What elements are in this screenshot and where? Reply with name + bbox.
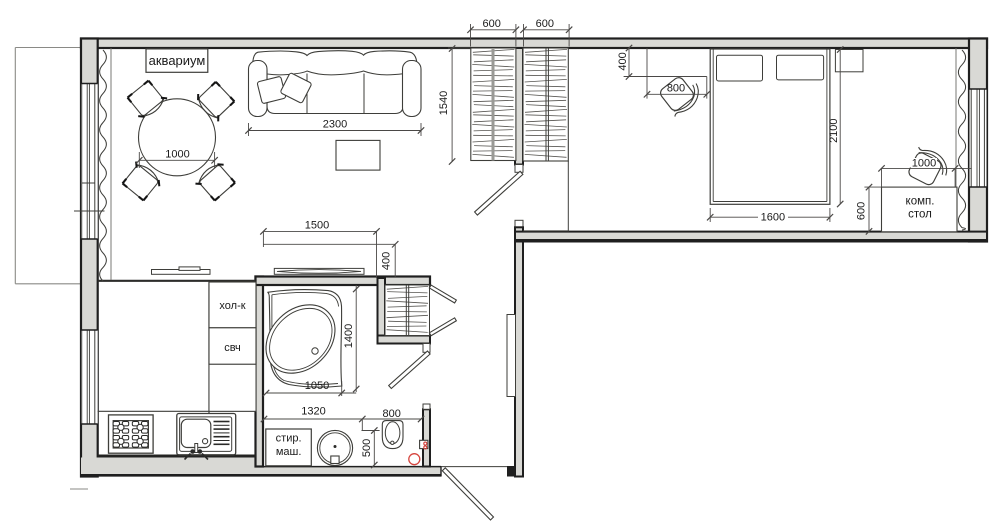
svg-text:2100: 2100 <box>828 118 840 142</box>
svg-text:600: 600 <box>483 18 501 30</box>
svg-text:400: 400 <box>381 252 393 270</box>
svg-text:1400: 1400 <box>343 324 355 348</box>
svg-text:1500: 1500 <box>305 219 329 231</box>
svg-text:стир.: стир. <box>276 433 302 445</box>
svg-text:аквариум: аквариум <box>149 53 206 68</box>
svg-text:1540: 1540 <box>438 91 450 115</box>
svg-text:стол: стол <box>908 209 932 221</box>
svg-text:800: 800 <box>667 83 685 95</box>
svg-text:1000: 1000 <box>912 157 936 169</box>
svg-text:600: 600 <box>536 18 554 30</box>
svg-text:500: 500 <box>361 439 373 457</box>
svg-text:маш.: маш. <box>276 446 302 458</box>
svg-text:400: 400 <box>617 52 629 70</box>
svg-text:2300: 2300 <box>323 119 347 131</box>
svg-text:1600: 1600 <box>761 211 785 223</box>
svg-text:1000: 1000 <box>165 149 189 161</box>
svg-text:хол-к: хол-к <box>219 300 245 312</box>
svg-text:800: 800 <box>383 408 401 420</box>
svg-text:600: 600 <box>856 202 868 220</box>
svg-text:свч: свч <box>224 342 241 354</box>
svg-text:комп.: комп. <box>906 196 935 208</box>
svg-text:1050: 1050 <box>305 380 329 392</box>
svg-text:1320: 1320 <box>301 406 325 418</box>
